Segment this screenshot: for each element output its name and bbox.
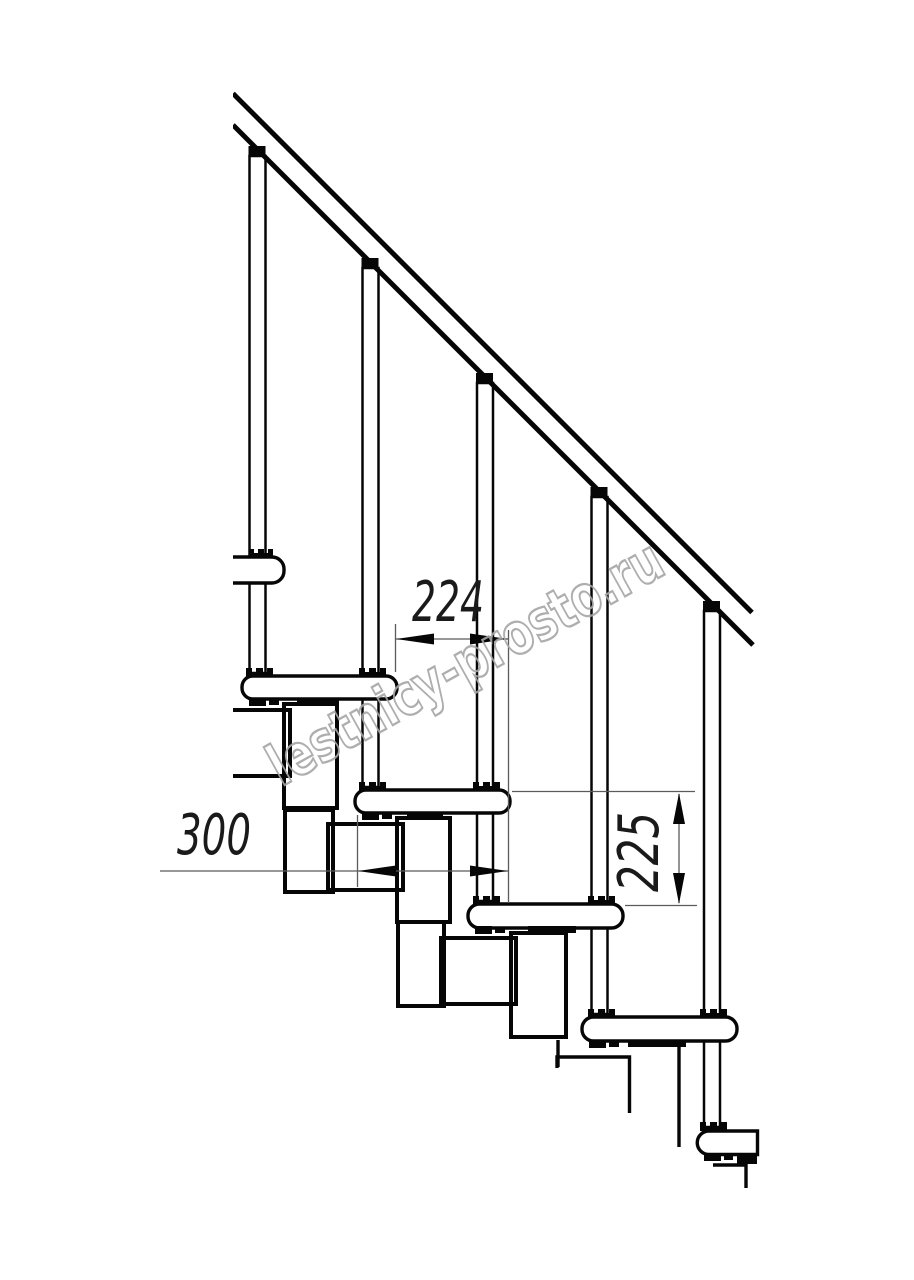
- staircase-drawing: 224 300 225 lestnicy-prosto.ru: [0, 0, 914, 1280]
- baluster-1: [250, 156, 266, 673]
- arrowhead-down-icon: [673, 873, 685, 904]
- module-stub-wide-step4: [557, 1057, 630, 1113]
- arrowhead-left-icon: [358, 866, 396, 877]
- clamp-upper-tread-b1: [249, 549, 273, 558]
- module-tall-box-step3: [511, 933, 566, 1037]
- dimension-label-300: 300: [177, 803, 251, 868]
- staircase-drawing-page: 224 300 225 lestnicy-prosto.ru: [0, 0, 914, 1280]
- module-wide-box-step3: [441, 938, 516, 1004]
- watermark-text: lestnicy-prosto.ru: [256, 527, 675, 799]
- tread-3: [468, 904, 623, 928]
- tread-5: [697, 1131, 757, 1155]
- module-low-box-step2: [398, 922, 444, 1006]
- dimension-annotations: 224 300 225: [160, 570, 697, 906]
- baluster-5: [704, 611, 720, 1127]
- module-wide-box-step2: [328, 824, 403, 890]
- tread-4: [582, 1017, 737, 1041]
- tread-upper: [129, 557, 284, 583]
- module-stub-wide-step5: [713, 1165, 746, 1188]
- arrowhead-left-icon: [396, 634, 434, 645]
- module-low-box-step1: [285, 810, 333, 892]
- dimension-label-225: 225: [607, 812, 672, 892]
- tread-2: [355, 790, 510, 813]
- arrowhead-up-icon: [673, 793, 685, 824]
